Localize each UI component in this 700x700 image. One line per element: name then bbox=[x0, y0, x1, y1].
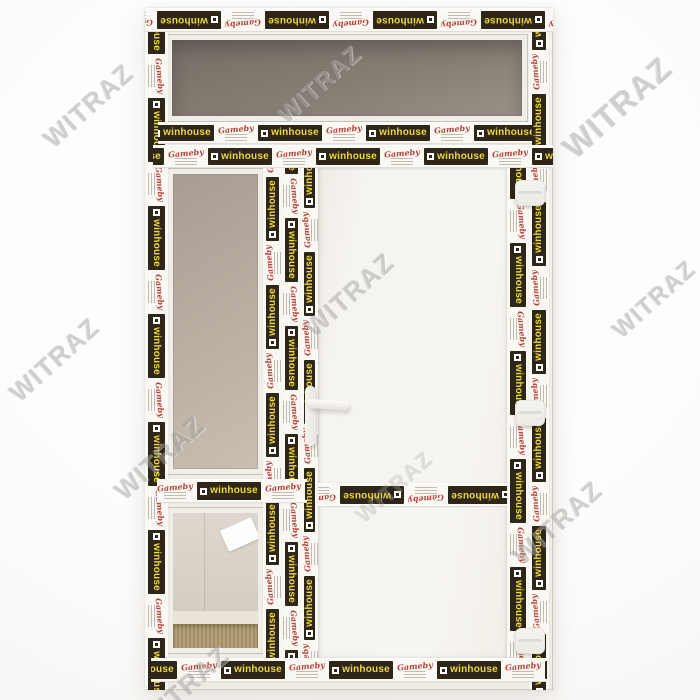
tape-gap: Gameby bbox=[166, 149, 206, 165]
tape-brand-label: winhouse bbox=[305, 255, 315, 303]
tape-fine-print bbox=[391, 158, 413, 165]
tape-script-label: Gameby bbox=[263, 245, 274, 281]
tape-gap: Gameby bbox=[382, 149, 422, 165]
tape-gap: Gameby bbox=[531, 52, 547, 92]
winhouse-logo-icon bbox=[536, 580, 543, 587]
tape-script-label: Gameby bbox=[263, 168, 274, 173]
winhouse-logo-icon bbox=[536, 256, 543, 263]
tape-script-label: Gameby bbox=[290, 502, 301, 538]
tape-transom-bottom: winhouseGamebywinhouseGamebywinhouseGame… bbox=[158, 122, 532, 144]
tape-fine-print bbox=[284, 185, 291, 207]
tape-script-label: Gameby bbox=[529, 54, 540, 90]
tape-fine-print bbox=[415, 487, 437, 494]
winhouse-logo-icon bbox=[536, 364, 543, 371]
tape-script-label: Gameby bbox=[276, 147, 312, 158]
winhouse-logo-icon bbox=[153, 641, 160, 648]
tape-script-label: Gameby bbox=[516, 311, 527, 347]
watermark: WITRAZ bbox=[4, 312, 107, 409]
tape-brand-block: winhouse bbox=[148, 530, 165, 594]
winhouse-logo-icon bbox=[427, 17, 434, 24]
tape-segment: winhouseGameby bbox=[529, 52, 549, 160]
tape-segment: winhouseGameby bbox=[263, 243, 282, 351]
tape-brand-block: winhouse bbox=[424, 148, 488, 165]
tape-gap: Gameby bbox=[263, 483, 303, 499]
tape-brand-block: winhouse bbox=[285, 168, 298, 174]
winhouse-logo-icon bbox=[515, 462, 522, 469]
winhouse-logo-icon bbox=[306, 630, 313, 637]
tape-script-label: Gameby bbox=[408, 493, 444, 504]
tape-brand-block: winhouse bbox=[304, 576, 315, 640]
tape-script-label: Gameby bbox=[549, 18, 553, 29]
tape-gap: Gameby bbox=[223, 12, 263, 28]
tape-segment: winhouseGameby bbox=[145, 528, 168, 636]
handle-backplate bbox=[305, 386, 316, 446]
tape-segment: winhouseGameby bbox=[282, 324, 301, 432]
tape-script-label: Gameby bbox=[218, 123, 254, 134]
tape-brand-block: winhouse bbox=[157, 11, 221, 29]
tape-script-label: Gameby bbox=[263, 353, 274, 389]
tape-right-frame: winhouseGamebywinhouseGamebywinhouseGame… bbox=[529, 8, 549, 690]
tape-segment: winhouseGameby bbox=[439, 8, 547, 32]
winhouse-logo-icon bbox=[332, 667, 339, 674]
tape-script-label: Gameby bbox=[263, 569, 274, 605]
tape-script-label: Gameby bbox=[290, 178, 301, 214]
tape-brand-label: winhouse bbox=[545, 152, 553, 162]
winhouse-logo-icon bbox=[200, 488, 207, 495]
tape-fine-print bbox=[404, 671, 426, 678]
tape-brand-block: winhouse bbox=[148, 314, 165, 378]
tape-gap: Gameby bbox=[531, 592, 547, 632]
tape-script-label: Gameby bbox=[265, 481, 301, 492]
tape-brand-label: winhouse bbox=[513, 256, 523, 304]
tape-gap: Gameby bbox=[503, 662, 543, 678]
tape-fine-print bbox=[149, 173, 156, 195]
tape-segment: winhouseGameby bbox=[157, 479, 195, 503]
tape-segment: winhouseGameby bbox=[301, 210, 318, 318]
tape-script-label: Gameby bbox=[397, 660, 433, 671]
tape-brand-label: winhouse bbox=[484, 15, 532, 25]
tape-script-label: Gameby bbox=[333, 18, 369, 29]
winhouse-logo-icon bbox=[515, 570, 522, 577]
tape-brand-block: winhouse bbox=[510, 243, 526, 307]
tape-segment: winhouseGameby bbox=[145, 8, 223, 32]
tape-segment: winhouseGameby bbox=[529, 376, 549, 484]
tape-brand-label: winhouse bbox=[160, 15, 208, 25]
tape-brand-label: winhouse bbox=[271, 128, 319, 138]
winhouse-logo-icon bbox=[288, 437, 295, 444]
tape-brand-label: winhouse bbox=[153, 152, 161, 162]
tape-gap: Gameby bbox=[274, 149, 314, 165]
tape-fine-print bbox=[448, 12, 470, 19]
tape-script-label: Gameby bbox=[155, 598, 166, 634]
tape-brand-block: winhouse bbox=[265, 11, 329, 29]
tape-brand-block: winhouse bbox=[481, 11, 545, 29]
tape-brand-label: winhouse bbox=[451, 490, 499, 500]
winhouse-logo-icon bbox=[515, 246, 522, 253]
tape-brand-block: winhouse bbox=[448, 486, 507, 504]
winhouse-logo-icon bbox=[319, 153, 326, 160]
tape-gap: Gameby bbox=[432, 125, 472, 141]
winhouse-logo-icon bbox=[536, 472, 543, 479]
tape-fine-print bbox=[149, 389, 156, 411]
tape-fine-print bbox=[540, 601, 547, 623]
tape-gap: Gameby bbox=[302, 534, 318, 574]
tape-script-label: Gameby bbox=[145, 18, 153, 29]
tape-fine-print bbox=[149, 605, 156, 627]
tape-segment: winhouseGameby bbox=[145, 204, 168, 312]
tape-gap: Gameby bbox=[287, 662, 327, 678]
tape-brand-block: winhouse bbox=[532, 418, 546, 482]
tape-brand-block: winhouse bbox=[510, 459, 526, 523]
tape-brand-block: winhouse bbox=[474, 125, 532, 141]
winhouse-logo-icon bbox=[535, 17, 542, 24]
tape-brand-label: winhouse bbox=[268, 504, 278, 552]
tape-gap: Gameby bbox=[284, 176, 300, 216]
tape-brand-block: winhouse bbox=[285, 542, 298, 606]
tape-segment: winhouseGameby bbox=[282, 168, 301, 216]
tape-gap: Gameby bbox=[490, 149, 530, 165]
tape-brand-block: winhouse bbox=[285, 218, 298, 282]
tape-segment: winhouseGameby bbox=[301, 168, 318, 210]
winhouse-logo-icon bbox=[153, 101, 160, 108]
tape-brand-block: winhouse bbox=[158, 125, 214, 141]
winhouse-logo-icon bbox=[306, 198, 313, 205]
tape-brand-label: winhouse bbox=[287, 168, 297, 171]
tape-brand-label: winhouse bbox=[151, 665, 174, 675]
winhouse-logo-icon bbox=[211, 17, 218, 24]
tape-script-label: Gameby bbox=[529, 270, 540, 306]
tape-gap: Gameby bbox=[265, 243, 281, 283]
tape-fine-print bbox=[145, 12, 146, 19]
watermark: WITRAZ bbox=[38, 58, 141, 155]
tape-brand-block: winhouse bbox=[266, 609, 279, 660]
tape-brand-label: winhouse bbox=[210, 486, 258, 496]
tape-brand-block: winhouse bbox=[148, 206, 165, 270]
tape-segment: winhouseGameby bbox=[263, 567, 282, 660]
tape-brand-label: winhouse bbox=[268, 288, 278, 336]
tape-fine-print bbox=[284, 401, 291, 423]
tape-fine-print bbox=[510, 210, 517, 232]
tape-segment: winhouseGameby bbox=[543, 658, 547, 682]
tape-segment: winhouseGameby bbox=[472, 122, 532, 144]
winhouse-logo-icon bbox=[269, 447, 276, 454]
tape-segment: winhouseGameby bbox=[256, 122, 364, 144]
tape-gap: Gameby bbox=[265, 351, 281, 391]
winhouse-logo-icon bbox=[427, 153, 434, 160]
tape-gap: Gameby bbox=[302, 210, 318, 250]
winhouse-logo-icon bbox=[515, 354, 522, 361]
winhouse-logo-icon bbox=[502, 492, 507, 499]
tape-gap: Gameby bbox=[149, 56, 165, 96]
tape-brand-label: winhouse bbox=[163, 128, 211, 138]
tape-brand-block: winhouse bbox=[266, 501, 279, 565]
tape-gap: Gameby bbox=[149, 272, 165, 312]
tape-segment: winhouseGameby bbox=[282, 540, 301, 648]
tape-fine-print bbox=[284, 617, 291, 639]
tape-brand-block: winhouse bbox=[532, 148, 553, 165]
tape-brand-label: winhouse bbox=[221, 152, 269, 162]
tape-segment: winhouseGameby bbox=[282, 216, 301, 324]
tape-gap: Gameby bbox=[149, 596, 165, 636]
tape-brand-label: winhouse bbox=[376, 15, 424, 25]
tape-script-label: Gameby bbox=[290, 610, 301, 646]
tape-fine-print bbox=[274, 576, 281, 598]
winhouse-logo-icon bbox=[306, 522, 313, 529]
tape-brand-block: winhouse bbox=[305, 482, 307, 500]
tape-fine-print bbox=[232, 12, 254, 19]
tape-brand-label: winhouse bbox=[437, 152, 485, 162]
tape-brand-block: winhouse bbox=[366, 125, 430, 141]
tape-brand-block: winhouse bbox=[532, 202, 546, 266]
tape-segment: winhouseGameby bbox=[547, 8, 553, 32]
tape-brand-block: winhouse bbox=[285, 326, 298, 390]
tape-script-label: Gameby bbox=[441, 18, 477, 29]
tape-brand-label: winhouse bbox=[513, 580, 523, 628]
tape-script-label: Gameby bbox=[434, 123, 470, 134]
tape-segment: winhouseGameby bbox=[158, 122, 256, 144]
tape-script-label: Gameby bbox=[505, 660, 541, 671]
tape-gap: Gameby bbox=[395, 662, 435, 678]
tape-brand-label: winhouse bbox=[287, 231, 297, 279]
tape-gap: Gameby bbox=[284, 608, 300, 648]
winhouse-logo-icon bbox=[211, 153, 218, 160]
tape-gap: Gameby bbox=[439, 12, 479, 28]
tape-gap: Gameby bbox=[216, 125, 256, 141]
tape-brand-block: winhouse bbox=[316, 148, 380, 165]
tape-brand-label: winhouse bbox=[268, 612, 278, 660]
tape-left-frame: winhouseGamebywinhouseGamebywinhouseGame… bbox=[145, 8, 168, 690]
door-window-unit: winhouseGamebywinhouseGamebywinhouseGame… bbox=[145, 8, 553, 690]
tape-gap: Gameby bbox=[149, 380, 165, 420]
tape-gap: Gameby bbox=[284, 500, 300, 540]
tape-fine-print bbox=[225, 134, 247, 141]
tape-script-label: Gameby bbox=[290, 394, 301, 430]
tape-brand-block: winhouse bbox=[266, 177, 279, 241]
tape-segment: winhouseGameby bbox=[422, 145, 530, 168]
tape-fine-print bbox=[510, 426, 517, 448]
winhouse-logo-icon bbox=[536, 688, 543, 690]
door-leaf bbox=[318, 168, 507, 660]
tape-script-label: Gameby bbox=[318, 493, 336, 504]
winhouse-logo-icon bbox=[269, 555, 276, 562]
tape-gap: Gameby bbox=[406, 487, 446, 503]
winhouse-logo-icon bbox=[288, 329, 295, 336]
tape-script-label: Gameby bbox=[155, 166, 166, 202]
tape-brand-label: winhouse bbox=[534, 97, 544, 145]
watermark: WITRAZ bbox=[556, 50, 680, 167]
tape-script-label: Gameby bbox=[384, 147, 420, 158]
tape-brand-block: winhouse bbox=[153, 148, 164, 165]
tape-script-label: Gameby bbox=[155, 274, 166, 310]
tape-fine-print bbox=[149, 497, 156, 519]
tape-fine-print bbox=[296, 671, 318, 678]
tape-segment: winhouseGameby bbox=[314, 145, 422, 168]
tape-gap: Gameby bbox=[510, 309, 526, 349]
tape-gap: Gameby bbox=[157, 483, 195, 499]
tape-fine-print bbox=[499, 158, 521, 165]
hinge-top bbox=[515, 180, 545, 206]
tape-fine-print bbox=[164, 492, 186, 499]
tape-segment: winhouseGameby bbox=[145, 312, 168, 420]
winhouse-logo-icon bbox=[440, 667, 447, 674]
tape-fine-print bbox=[284, 509, 291, 531]
tape-mullion-a: winhouseGamebywinhouseGamebywinhouseGame… bbox=[263, 168, 282, 660]
tape-gap: Gameby bbox=[145, 12, 155, 28]
tape-segment: winhouseGameby bbox=[263, 459, 282, 567]
tape-script-label: Gameby bbox=[516, 203, 527, 239]
tape-fine-print bbox=[272, 492, 294, 499]
wall-corner-line bbox=[204, 513, 205, 613]
winhouse-logo-icon bbox=[535, 153, 542, 160]
tape-brand-block: winhouse bbox=[532, 310, 546, 374]
tape-fine-print bbox=[512, 671, 534, 678]
tape-segment: winhouseGameby bbox=[327, 658, 435, 682]
tape-script-label: Gameby bbox=[492, 147, 528, 158]
winhouse-logo-icon bbox=[261, 130, 268, 137]
winhouse-logo-icon bbox=[369, 130, 376, 137]
tape-gap: Gameby bbox=[149, 164, 165, 204]
tape-brand-label: winhouse bbox=[287, 555, 297, 603]
winhouse-logo-icon bbox=[153, 317, 160, 324]
tape-brand-block: winhouse bbox=[266, 393, 279, 457]
winhouse-logo-icon bbox=[158, 130, 160, 137]
tape-script-label: Gameby bbox=[290, 286, 301, 322]
tape-brand-label: winhouse bbox=[329, 152, 377, 162]
tape-fine-print bbox=[284, 293, 291, 315]
tape-script-label: Gameby bbox=[529, 486, 540, 522]
tape-gap: Gameby bbox=[265, 168, 281, 175]
tape-mullion-b: winhouseGamebywinhouseGamebywinhouseGame… bbox=[282, 168, 301, 660]
tape-brand-label: winhouse bbox=[305, 168, 315, 195]
tape-fine-print bbox=[283, 158, 305, 165]
tape-script-label: Gameby bbox=[157, 481, 193, 492]
tape-fine-print bbox=[311, 543, 318, 565]
tape-brand-block: winhouse bbox=[329, 661, 393, 679]
winhouse-logo-icon bbox=[288, 221, 295, 228]
hinge-bottom bbox=[515, 628, 545, 654]
side-window-lower-glass bbox=[168, 508, 263, 653]
tape-gap: Gameby bbox=[284, 284, 300, 324]
tape-segment: winhouseGameby bbox=[507, 241, 529, 349]
winhouse-logo-icon bbox=[269, 339, 276, 346]
tape-segment: winhouseGameby bbox=[303, 479, 307, 503]
winhouse-logo-icon bbox=[153, 209, 160, 216]
tape-brand-block: winhouse bbox=[266, 285, 279, 349]
winhouse-logo-icon bbox=[477, 130, 484, 137]
tape-brand-label: winhouse bbox=[152, 219, 162, 267]
tape-fine-print bbox=[510, 318, 517, 340]
tape-brand-block: winhouse bbox=[208, 148, 272, 165]
tape-segment: winhouseGameby bbox=[301, 534, 318, 642]
winhouse-logo-icon bbox=[153, 533, 160, 540]
baseboard-through-glass bbox=[173, 611, 258, 624]
tape-top-frame: winhouseGamebywinhouseGamebywinhouseGame… bbox=[145, 8, 553, 32]
tape-brand-label: winhouse bbox=[268, 15, 316, 25]
tape-segment: winhouseGameby bbox=[331, 8, 439, 32]
tape-gap: Gameby bbox=[265, 567, 281, 607]
tape-segment: winhouseGameby bbox=[529, 160, 549, 268]
hinge-middle bbox=[515, 400, 545, 426]
product-photo: winhouseGamebywinhouseGamebywinhouseGame… bbox=[0, 0, 700, 700]
tape-script-label: Gameby bbox=[225, 18, 261, 29]
tape-brand-label: winhouse bbox=[234, 665, 282, 675]
tape-gap: Gameby bbox=[531, 268, 547, 308]
tape-fine-print bbox=[149, 65, 156, 87]
tape-script-label: Gameby bbox=[155, 382, 166, 418]
tape-brand-block: winhouse bbox=[510, 567, 526, 631]
tape-gap: Gameby bbox=[547, 12, 553, 28]
tape-gap: Gameby bbox=[331, 12, 371, 28]
tape-fine-print bbox=[274, 252, 281, 274]
tape-segment: winhouseGameby bbox=[530, 145, 553, 168]
tape-brand-label: winhouse bbox=[534, 205, 544, 253]
tape-brand-block: winhouse bbox=[304, 168, 315, 208]
tape-segment: winhouseGameby bbox=[263, 168, 282, 243]
tape-gap: Gameby bbox=[324, 125, 364, 141]
tape-brand-label: winhouse bbox=[268, 396, 278, 444]
tape-segment: winhouseGameby bbox=[435, 658, 543, 682]
watermark: WITRAZ bbox=[608, 255, 700, 344]
tape-gap: Gameby bbox=[318, 487, 338, 503]
winhouse-logo-icon bbox=[536, 40, 543, 47]
tape-brand-label: winhouse bbox=[268, 180, 278, 228]
tape-fine-print bbox=[333, 134, 355, 141]
tape-brand-label: winhouse bbox=[513, 472, 523, 520]
tape-segment: winhouseGameby bbox=[406, 483, 507, 507]
tape-brand-block: winhouse bbox=[197, 482, 261, 500]
tape-brand-block: winhouse bbox=[373, 11, 437, 29]
tape-fine-print bbox=[540, 277, 547, 299]
tape-brand-block: winhouse bbox=[545, 661, 547, 679]
tape-fine-print bbox=[175, 158, 197, 165]
tape-brand-label: winhouse bbox=[342, 665, 390, 675]
tape-brand-label: winhouse bbox=[534, 313, 544, 361]
tape-fine-print bbox=[274, 360, 281, 382]
tape-brand-label: winhouse bbox=[305, 579, 315, 627]
winhouse-logo-icon bbox=[319, 17, 326, 24]
tape-gap: Gameby bbox=[284, 392, 300, 432]
tape-segment: winhouseGameby bbox=[153, 145, 206, 168]
winhouse-logo-icon bbox=[153, 425, 160, 432]
tape-segment: winhouseGameby bbox=[529, 268, 549, 376]
tape-brand-label: winhouse bbox=[152, 327, 162, 375]
tape-fine-print bbox=[540, 61, 547, 83]
tape-window-divider: winhouseGamebywinhouseGamebywinhouseGame… bbox=[157, 479, 307, 503]
tape-script-label: Gameby bbox=[529, 594, 540, 630]
tape-brand-label: winhouse bbox=[287, 339, 297, 387]
tape-brand-block: winhouse bbox=[437, 661, 501, 679]
tape-brand-label: winhouse bbox=[379, 128, 427, 138]
tape-fine-print bbox=[149, 281, 156, 303]
tape-script-label: Gameby bbox=[168, 147, 204, 158]
tape-script-label: Gameby bbox=[155, 58, 166, 94]
winhouse-logo-icon bbox=[288, 545, 295, 552]
tape-brand-label: winhouse bbox=[534, 421, 544, 469]
tape-brand-label: winhouse bbox=[487, 128, 532, 138]
tape-segment: winhouseGameby bbox=[223, 8, 331, 32]
tape-script-label: Gameby bbox=[289, 660, 325, 671]
tape-brand-label: winhouse bbox=[450, 665, 498, 675]
winhouse-logo-icon bbox=[269, 231, 276, 238]
tape-lower-frame-top: winhouseGamebywinhouseGamebywinhouseGame… bbox=[153, 145, 553, 168]
tape-segment: winhouseGameby bbox=[195, 479, 303, 503]
tape-segment: winhouseGameby bbox=[206, 145, 314, 168]
tape-fine-print bbox=[441, 134, 463, 141]
tape-gap: Gameby bbox=[510, 201, 526, 241]
tape-fine-print bbox=[311, 219, 318, 241]
tape-segment: winhouseGameby bbox=[364, 122, 472, 144]
tape-segment: winhouseGameby bbox=[263, 351, 282, 459]
